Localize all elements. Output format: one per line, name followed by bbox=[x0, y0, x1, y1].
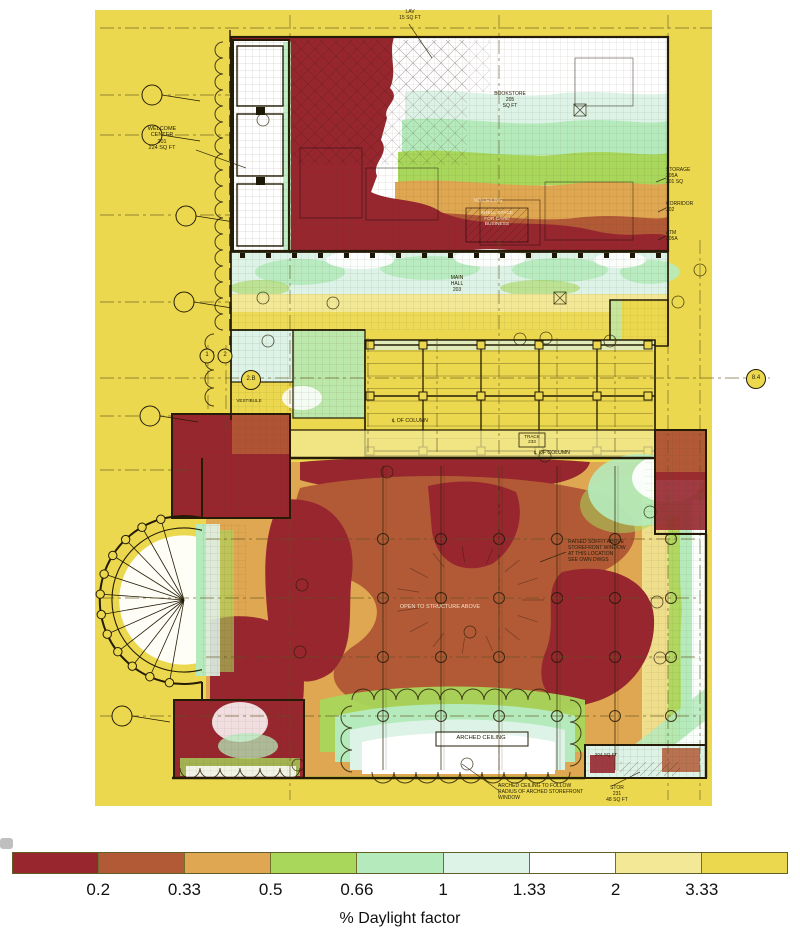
upper-block-heatmap bbox=[231, 37, 668, 252]
lobby-stub bbox=[610, 300, 668, 346]
bubble-1: 1 bbox=[200, 352, 214, 359]
legend-seg-0 bbox=[13, 853, 99, 873]
legend-seg-4 bbox=[357, 853, 443, 873]
label-col-centerline-2: ℄ OF COLUMN bbox=[534, 450, 606, 456]
bubble-2: 2 bbox=[218, 352, 232, 359]
label-raised-soffit: RAISED SOFFIT ABOVE STOREFRONT WINDOW AT… bbox=[568, 540, 644, 564]
bubble-2b: 2.B bbox=[241, 376, 261, 383]
floor-plan-heatmap: LAV 15 SQ FT WELCOME CENTER 201 224 SQ F… bbox=[0, 0, 800, 832]
legend-tick-1.33: 1.33 bbox=[513, 880, 546, 900]
legend-tick-0.66: 0.66 bbox=[340, 880, 373, 900]
bubble-84: 8.4 bbox=[746, 375, 766, 382]
label-welcome-center: WELCOME CENTER 201 224 SQ FT bbox=[128, 126, 196, 152]
label-storage: STORAGE 205A 301 SQ bbox=[666, 168, 712, 186]
legend-tick-1: 1 bbox=[438, 880, 447, 900]
label-room-204: 204 SQ FT bbox=[584, 752, 628, 757]
legend-seg-3 bbox=[271, 853, 357, 873]
welcome-center-window-bays bbox=[233, 40, 291, 251]
label-lav: LAV 15 SQ FT bbox=[390, 10, 430, 22]
legend-seg-6 bbox=[530, 853, 616, 873]
legend-colorbar bbox=[12, 852, 788, 874]
legend-tick-0.5: 0.5 bbox=[259, 880, 283, 900]
label-col-centerline-1: ℄ OF COLUMN bbox=[392, 418, 464, 424]
legend-tick-0.33: 0.33 bbox=[168, 880, 201, 900]
scan-artifact bbox=[0, 838, 13, 849]
label-shell-space: SHELL SPACE FOR CAFE/ BUSINESS bbox=[468, 211, 526, 228]
plan-graphics bbox=[0, 0, 800, 832]
label-bookstore: BOOKSTORE 205 SQ FT bbox=[478, 92, 542, 110]
label-no-ceiling: NO CEILING bbox=[452, 199, 524, 205]
legend-tick-2: 2 bbox=[611, 880, 620, 900]
label-vestibule: VESTIBULE bbox=[226, 398, 272, 403]
legend-caption: % Daylight factor bbox=[0, 910, 800, 928]
label-open-to-structure: OPEN TO STRUCTURE ABOVE bbox=[392, 604, 488, 610]
label-stor-231: STOR 231 48 SQ FT bbox=[596, 786, 638, 804]
label-arched-note: ARCHED CEILING TO FOLLOW RADIUS OF ARCHE… bbox=[498, 784, 602, 802]
label-main-hall: MAIN HALL 203 bbox=[440, 276, 474, 294]
legend-tick-3.33: 3.33 bbox=[685, 880, 718, 900]
label-atm: ATM 205A bbox=[666, 231, 702, 243]
pre-hall-band bbox=[290, 430, 668, 458]
legend-seg-5 bbox=[444, 853, 530, 873]
legend-seg-2 bbox=[185, 853, 271, 873]
legend-seg-1 bbox=[99, 853, 185, 873]
daylight-analysis-screenshot: LAV 15 SQ FT WELCOME CENTER 201 224 SQ F… bbox=[0, 0, 800, 943]
daylight-factor-legend: 0.20.330.50.6611.3323.33 % Daylight fact… bbox=[0, 836, 800, 943]
legend-tick-0.2: 0.2 bbox=[86, 880, 110, 900]
label-track: TRACK 233 bbox=[517, 434, 547, 445]
legend-seg-8 bbox=[702, 853, 787, 873]
legend-seg-7 bbox=[616, 853, 702, 873]
label-corridor: CORRIDOR 202 bbox=[666, 202, 712, 214]
label-arched-ceiling: ARCHED CEILING bbox=[428, 735, 534, 742]
legend-tick-labels: 0.20.330.50.6611.3323.33 bbox=[12, 880, 788, 904]
